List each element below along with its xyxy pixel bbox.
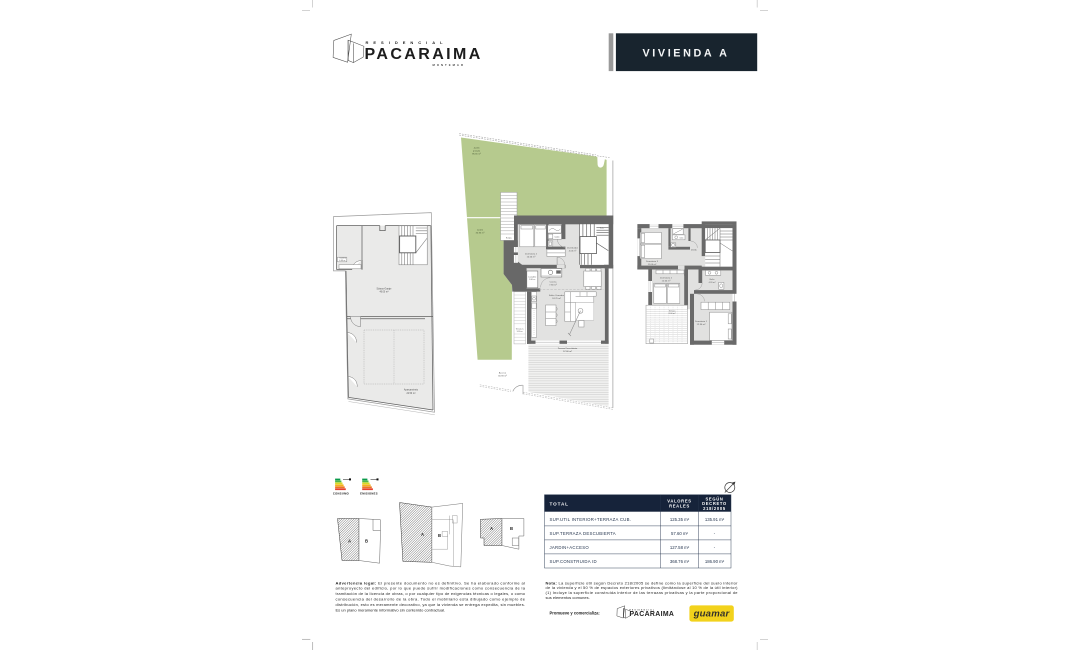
svg-text:PACARAIMA: PACARAIMA — [630, 611, 675, 618]
svg-text:A: A — [490, 526, 493, 531]
svg-text:218/2005: 218/2005 — [703, 506, 726, 511]
svg-text:anteproyecto del edificio, por: anteproyecto del edificio, por lo que pu… — [336, 586, 526, 591]
svg-text:JARDIN+ACCESO: JARDIN+ACCESO — [550, 545, 590, 550]
svg-text:Acceso: Acceso — [499, 372, 507, 375]
svg-text:Jardín: Jardín — [473, 147, 480, 150]
svg-text:sus elementos comunes.: sus elementos comunes. — [546, 595, 590, 600]
svg-text:9.30 m²: 9.30 m² — [517, 330, 523, 333]
svg-text:8.00 m²: 8.00 m² — [669, 312, 676, 315]
svg-text:Sube: Sube — [600, 228, 604, 230]
svg-text:Dormitorio 2: Dormitorio 2 — [525, 253, 538, 256]
svg-text:tramitación de la licencia de: tramitación de la licencia de obras, o p… — [336, 591, 526, 596]
svg-text:4.05 m²: 4.05 m² — [569, 250, 577, 253]
svg-text:368.76 m²: 368.76 m² — [670, 559, 690, 564]
svg-text:Jardín: Jardín — [477, 229, 484, 232]
svg-text:Terraza Descubierta: Terraza Descubierta — [558, 347, 578, 350]
svg-text:TOTAL: TOTAL — [550, 502, 569, 507]
svg-text:PACARAIMA: PACARAIMA — [365, 46, 483, 63]
svg-text:186.90 m²: 186.90 m² — [705, 559, 725, 564]
svg-text:B: B — [438, 533, 441, 538]
svg-text:11.00 m²: 11.00 m² — [648, 263, 657, 266]
svg-text:A: A — [348, 539, 351, 544]
svg-text:127.58 m²: 127.58 m² — [670, 545, 690, 550]
svg-text:7.80 m²: 7.80 m² — [549, 283, 557, 286]
svg-text:Sótano-Garaje: Sótano-Garaje — [377, 288, 393, 291]
svg-text:A: A — [421, 532, 424, 537]
svg-text:Dormitorio 2: Dormitorio 2 — [660, 277, 673, 280]
svg-text:24.70 m²: 24.70 m² — [552, 297, 561, 300]
svg-text:30.93 m²: 30.93 m² — [498, 375, 507, 378]
svg-text:Advertencia legal: El presente: Advertencia legal: El presente documento… — [336, 580, 526, 585]
svg-text:12.60 m²: 12.60 m² — [662, 279, 671, 282]
svg-text:Aparcamiento: Aparcamiento — [404, 389, 419, 392]
svg-text:57.60 m²: 57.60 m² — [671, 531, 689, 536]
svg-text:REALES: REALES — [669, 504, 690, 509]
svg-text:1.80 m²: 1.80 m² — [529, 278, 536, 281]
svg-text:SUP.TERRAZA DESCUBIERTA: SUP.TERRAZA DESCUBIERTA — [550, 531, 616, 536]
svg-text:-: - — [714, 545, 716, 550]
svg-text:Cocina: Cocina — [550, 281, 558, 283]
svg-text:4.20 m²: 4.20 m² — [709, 281, 716, 284]
svg-text:10.56 m²: 10.56 m² — [527, 256, 536, 259]
svg-text:12.30 m²: 12.30 m² — [697, 323, 706, 326]
svg-text:Promueve y comercializa:: Promueve y comercializa: — [550, 610, 600, 615]
svg-text:guamar: guamar — [693, 609, 731, 620]
svg-text:Salón Comedor: Salón Comedor — [549, 294, 564, 297]
svg-text:consecuencia del desarrollo de: consecuencia del desarrollo de la obra. … — [336, 597, 526, 602]
svg-text:135.91 m²: 135.91 m² — [705, 517, 725, 522]
svg-text:privado: privado — [473, 150, 481, 153]
svg-text:lavabo: lavabo — [555, 237, 560, 239]
svg-text:Lavadero: Lavadero — [528, 275, 536, 278]
svg-text:22.50 m²: 22.50 m² — [406, 392, 415, 395]
svg-text:distribución, esto es merament: distribución, esto es meramente decorati… — [336, 602, 526, 607]
svg-text:96.65 m²: 96.65 m² — [472, 153, 481, 156]
svg-text:4.00 m²: 4.00 m² — [339, 259, 346, 262]
svg-text:Distribuidor: Distribuidor — [567, 247, 578, 250]
svg-text:EMISIONES: EMISIONES — [360, 492, 378, 496]
svg-text:Dormitorio 3: Dormitorio 3 — [646, 260, 659, 263]
svg-text:B: B — [365, 539, 368, 544]
svg-text:RESIDENCIAL: RESIDENCIAL — [366, 40, 448, 45]
svg-text:Dormitorio 1: Dormitorio 1 — [695, 320, 708, 323]
svg-text:B: B — [510, 526, 513, 531]
svg-text:MONTEMAR: MONTEMAR — [433, 63, 465, 67]
svg-text:57.60 m²: 57.60 m² — [563, 350, 572, 353]
svg-text:Distrib.: Distrib. — [691, 249, 698, 252]
svg-text:Rampa: Rampa — [506, 238, 512, 240]
svg-text:30.93 m²: 30.93 m² — [476, 232, 485, 235]
svg-text:SUP.CONSTRUIDA ID: SUP.CONSTRUIDA ID — [550, 559, 597, 564]
svg-text:Es un plano meramente informat: Es un plano meramente informativo sin co… — [336, 607, 446, 612]
svg-text:125.35 m²: 125.35 m² — [670, 517, 690, 522]
svg-text:SUP.UTIL INTERIOR+TERRAZA CUB.: SUP.UTIL INTERIOR+TERRAZA CUB. — [550, 517, 632, 522]
svg-text:CONSUMO: CONSUMO — [333, 492, 349, 496]
svg-text:-: - — [714, 531, 716, 536]
svg-text:46.00 m²: 46.00 m² — [379, 291, 388, 294]
svg-text:VIVIENDA A: VIVIENDA A — [643, 47, 730, 59]
